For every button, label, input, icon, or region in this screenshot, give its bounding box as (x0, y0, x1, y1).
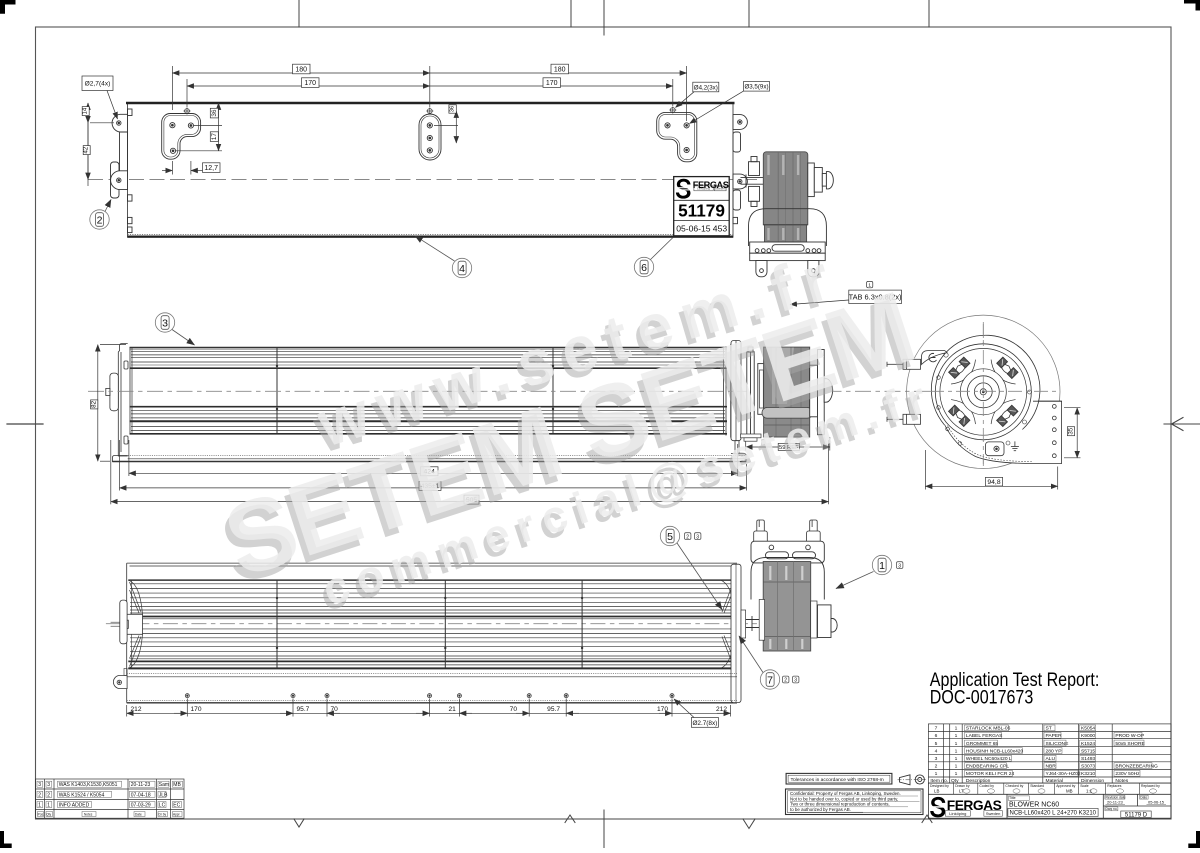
svg-text:2: 2 (686, 534, 689, 540)
svg-text:WAS K1403,K1530,K5051: WAS K1403,K1530,K5051 (59, 782, 118, 788)
svg-text:21: 21 (449, 706, 457, 713)
svg-text:42: 42 (84, 146, 90, 153)
svg-text:Replaces: Replaces (1107, 784, 1121, 788)
svg-text:Sam: Sam (159, 782, 169, 788)
svg-text:212: 212 (131, 706, 142, 713)
svg-text:WAS K1524 / K5054: WAS K1524 / K5054 (59, 792, 105, 798)
svg-text:Date: Date (1140, 795, 1147, 799)
svg-text:3: 3 (162, 318, 168, 330)
svg-text:1: 1 (955, 756, 958, 762)
svg-text:Pos.: Pos. (38, 813, 44, 817)
svg-text:to be authorized by Fergas: to be authorized by Fergas AB. (790, 807, 851, 812)
svg-text:Drawn by: Drawn by (955, 784, 970, 788)
svg-text:Not to be handed over to,: Not to be handed over to, copied or used… (790, 796, 898, 801)
svg-text:07-03-29: 07-03-29 (131, 803, 151, 809)
svg-text:170: 170 (546, 80, 558, 87)
svg-text:6: 6 (641, 262, 647, 274)
svg-text:Confidential: Property of F: Confidential: Property of Fergas AB, Lin… (790, 791, 901, 796)
svg-text:2: 2 (47, 792, 50, 798)
svg-text:3: 3 (794, 678, 797, 684)
svg-text:Date: Date (135, 813, 142, 817)
svg-text:Ø3,5(9x): Ø3,5(9x) (744, 84, 768, 91)
svg-text:5: 5 (667, 531, 673, 543)
svg-text:51179 D: 51179 D (1125, 812, 1148, 818)
svg-text:2: 2 (935, 764, 938, 770)
svg-text:14: 14 (83, 107, 89, 114)
svg-text:1: 1 (955, 741, 958, 747)
svg-text:05-06-15: 05-06-15 (676, 223, 711, 233)
svg-text:Ø4,2(3x): Ø4,2(3x) (694, 84, 718, 91)
svg-text:Sweden: Sweden (715, 187, 726, 191)
svg-text:MB: MB (173, 782, 181, 788)
svg-text:Scale: Scale (1080, 784, 1089, 788)
svg-text:3: 3 (38, 782, 41, 788)
svg-text:JLB: JLB (159, 792, 168, 798)
svg-text:Tolerances in accordance with: Tolerances in accordance with ISO 2768-m (791, 777, 884, 783)
svg-text:3: 3 (898, 563, 901, 569)
svg-text:Appr: Appr (173, 813, 181, 817)
svg-text:1: 1 (955, 748, 958, 754)
svg-text:INFO ADDED: INFO ADDED (59, 803, 90, 809)
svg-text:12,7: 12,7 (204, 165, 218, 172)
svg-text:6: 6 (935, 733, 938, 739)
svg-text:Ø2,7(4x): Ø2,7(4x) (85, 81, 111, 88)
svg-text:Revision date: Revision date (1106, 795, 1126, 799)
svg-text:180: 180 (295, 67, 307, 74)
svg-text:95.7: 95.7 (297, 706, 310, 713)
svg-text:82: 82 (91, 400, 98, 407)
svg-text:70: 70 (331, 706, 339, 713)
svg-text:7: 7 (767, 675, 773, 687)
svg-text:BLOWER NC60: BLOWER NC60 (1009, 801, 1059, 808)
svg-text:Ø2.7(8x): Ø2.7(8x) (692, 720, 717, 727)
svg-text:1: 1 (879, 560, 885, 572)
svg-text:2: 2 (784, 678, 787, 684)
svg-text:51179: 51179 (678, 201, 725, 221)
svg-text:70: 70 (510, 706, 518, 713)
svg-text:35: 35 (1068, 427, 1075, 434)
svg-text:Coded by: Coded by (979, 784, 994, 788)
svg-text:Dwg no.: Dwg no. (1106, 807, 1118, 811)
svg-text:7: 7 (935, 726, 938, 732)
svg-text:1: 1 (955, 733, 958, 739)
svg-text:Linköping: Linköping (949, 811, 966, 816)
svg-text:180: 180 (554, 67, 566, 74)
svg-text:Sweden: Sweden (986, 811, 1000, 816)
svg-text:DOC-0017673: DOC-0017673 (930, 688, 1034, 709)
svg-text:453: 453 (713, 223, 728, 233)
svg-text:20-11-23: 20-11-23 (131, 782, 151, 788)
svg-text:Qty: Qty (46, 813, 51, 817)
svg-text:1: 1 (38, 803, 41, 809)
svg-text:3: 3 (935, 756, 938, 762)
svg-text:36: 36 (211, 109, 218, 117)
svg-text:17: 17 (211, 133, 218, 141)
svg-text:Notes: Notes (84, 813, 93, 817)
svg-text:20-11-23: 20-11-23 (1107, 800, 1123, 805)
svg-text:94,8: 94,8 (987, 479, 1000, 486)
svg-text:36: 36 (450, 106, 456, 112)
svg-text:1: 1 (47, 803, 50, 809)
svg-text:1: 1 (955, 771, 958, 777)
svg-text:3: 3 (47, 782, 50, 788)
svg-text:LC: LC (159, 803, 166, 809)
svg-text:Approved by: Approved by (1056, 784, 1075, 788)
svg-text:NCB-LL60x420 L 24+270 K3210: NCB-LL60x420 L 24+270 K3210 (1010, 810, 1097, 817)
svg-text:4: 4 (935, 748, 938, 754)
svg-text:1: 1 (955, 726, 958, 732)
svg-text:1: 1 (935, 771, 938, 777)
svg-text:4: 4 (459, 263, 465, 275)
svg-text:Replaced by: Replaced by (1141, 784, 1160, 788)
svg-text:5: 5 (935, 741, 938, 747)
svg-text:170: 170 (304, 80, 316, 87)
svg-text:LB: LB (934, 789, 939, 794)
svg-text:Checked by: Checked by (1005, 784, 1023, 788)
svg-text:2: 2 (97, 215, 103, 227)
svg-text:Title: Title (1009, 796, 1016, 800)
svg-text:Standard: Standard (1030, 784, 1044, 788)
svg-text:2: 2 (38, 792, 41, 798)
svg-text:Designed by: Designed by (930, 784, 949, 788)
svg-text:170: 170 (191, 706, 202, 713)
svg-text:212: 212 (716, 706, 727, 713)
svg-text:170: 170 (657, 706, 668, 713)
svg-text:Dr by: Dr by (159, 813, 167, 817)
svg-text:05-06-15: 05-06-15 (1148, 800, 1165, 805)
svg-text:3: 3 (696, 534, 699, 540)
svg-text:MB: MB (1066, 789, 1073, 794)
svg-text:Linköping: Linköping (697, 187, 710, 191)
svg-text:EC: EC (173, 803, 180, 809)
svg-text:07-04-18: 07-04-18 (131, 792, 151, 798)
svg-text:Two or three dimensional r: Two or three dimensional reproduction of… (790, 802, 890, 807)
svg-text:1: 1 (955, 764, 958, 770)
svg-text:95.7: 95.7 (547, 706, 560, 713)
